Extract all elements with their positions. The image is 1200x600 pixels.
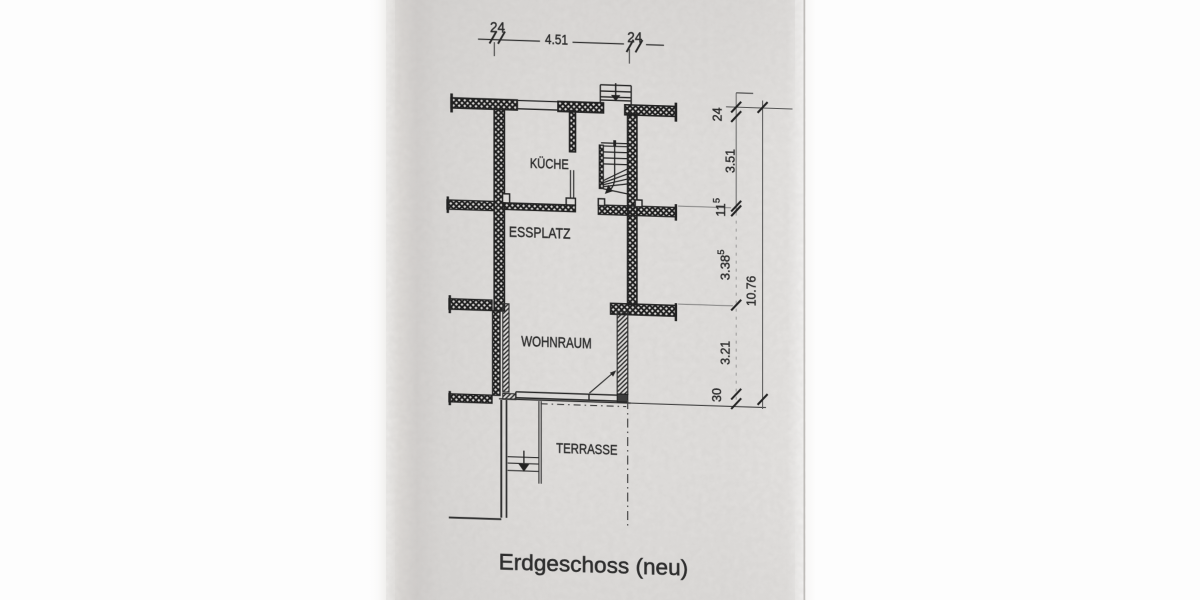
svg-text:10.76: 10.76	[744, 275, 759, 306]
svg-text:ESSPLATZ: ESSPLATZ	[509, 224, 571, 242]
svg-text:24: 24	[627, 29, 642, 46]
svg-text:WOHNRAUM: WOHNRAUM	[521, 334, 592, 352]
svg-text:KÜCHE: KÜCHE	[530, 156, 569, 172]
svg-text:3.21: 3.21	[718, 341, 733, 365]
svg-text:24: 24	[710, 107, 725, 121]
svg-text:TERRASSE: TERRASSE	[556, 441, 617, 458]
svg-text:30: 30	[709, 388, 724, 402]
svg-text:3.51: 3.51	[723, 149, 738, 173]
svg-text:24: 24	[490, 19, 505, 36]
svg-text:4.51: 4.51	[545, 31, 568, 48]
